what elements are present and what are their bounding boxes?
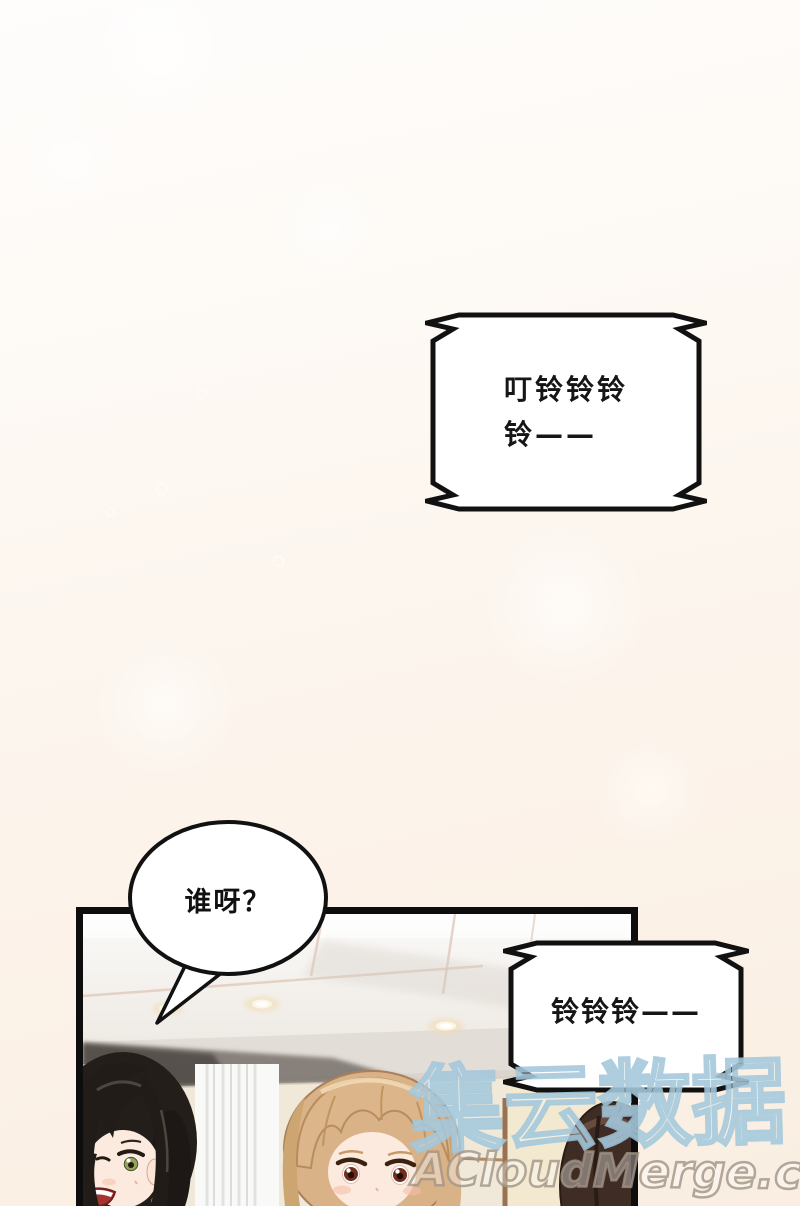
sfx-box-top: 叮铃铃铃 铃—— (425, 307, 707, 517)
bokeh-ring (106, 508, 115, 517)
bokeh-spot (90, 0, 230, 120)
sfx-top-line2: 铃—— (504, 412, 628, 457)
speech-bubble: 谁呀？ (126, 818, 336, 1032)
bokeh-spot (20, 110, 120, 210)
sfx-top-line1: 叮铃铃铃 (504, 367, 628, 412)
speech-bubble-shape (126, 818, 336, 1032)
sfx-bottom-text: 铃铃铃—— (503, 935, 749, 1098)
bokeh-ring (197, 389, 207, 399)
speech-bubble-text: 谁呀？ (126, 880, 330, 919)
bokeh-spot (590, 730, 710, 850)
bokeh-ring (156, 483, 168, 495)
bokeh-spot (480, 520, 650, 690)
bokeh-ring (273, 556, 284, 567)
sfx-box-bottom: 铃铃铃—— (503, 935, 749, 1098)
comic-page: { "page": { "background_top": "#fefdfc",… (0, 0, 800, 1206)
sfx-top-text: 叮铃铃铃 铃—— (504, 367, 628, 457)
bokeh-spot (270, 170, 390, 290)
bokeh-spot (90, 630, 240, 780)
